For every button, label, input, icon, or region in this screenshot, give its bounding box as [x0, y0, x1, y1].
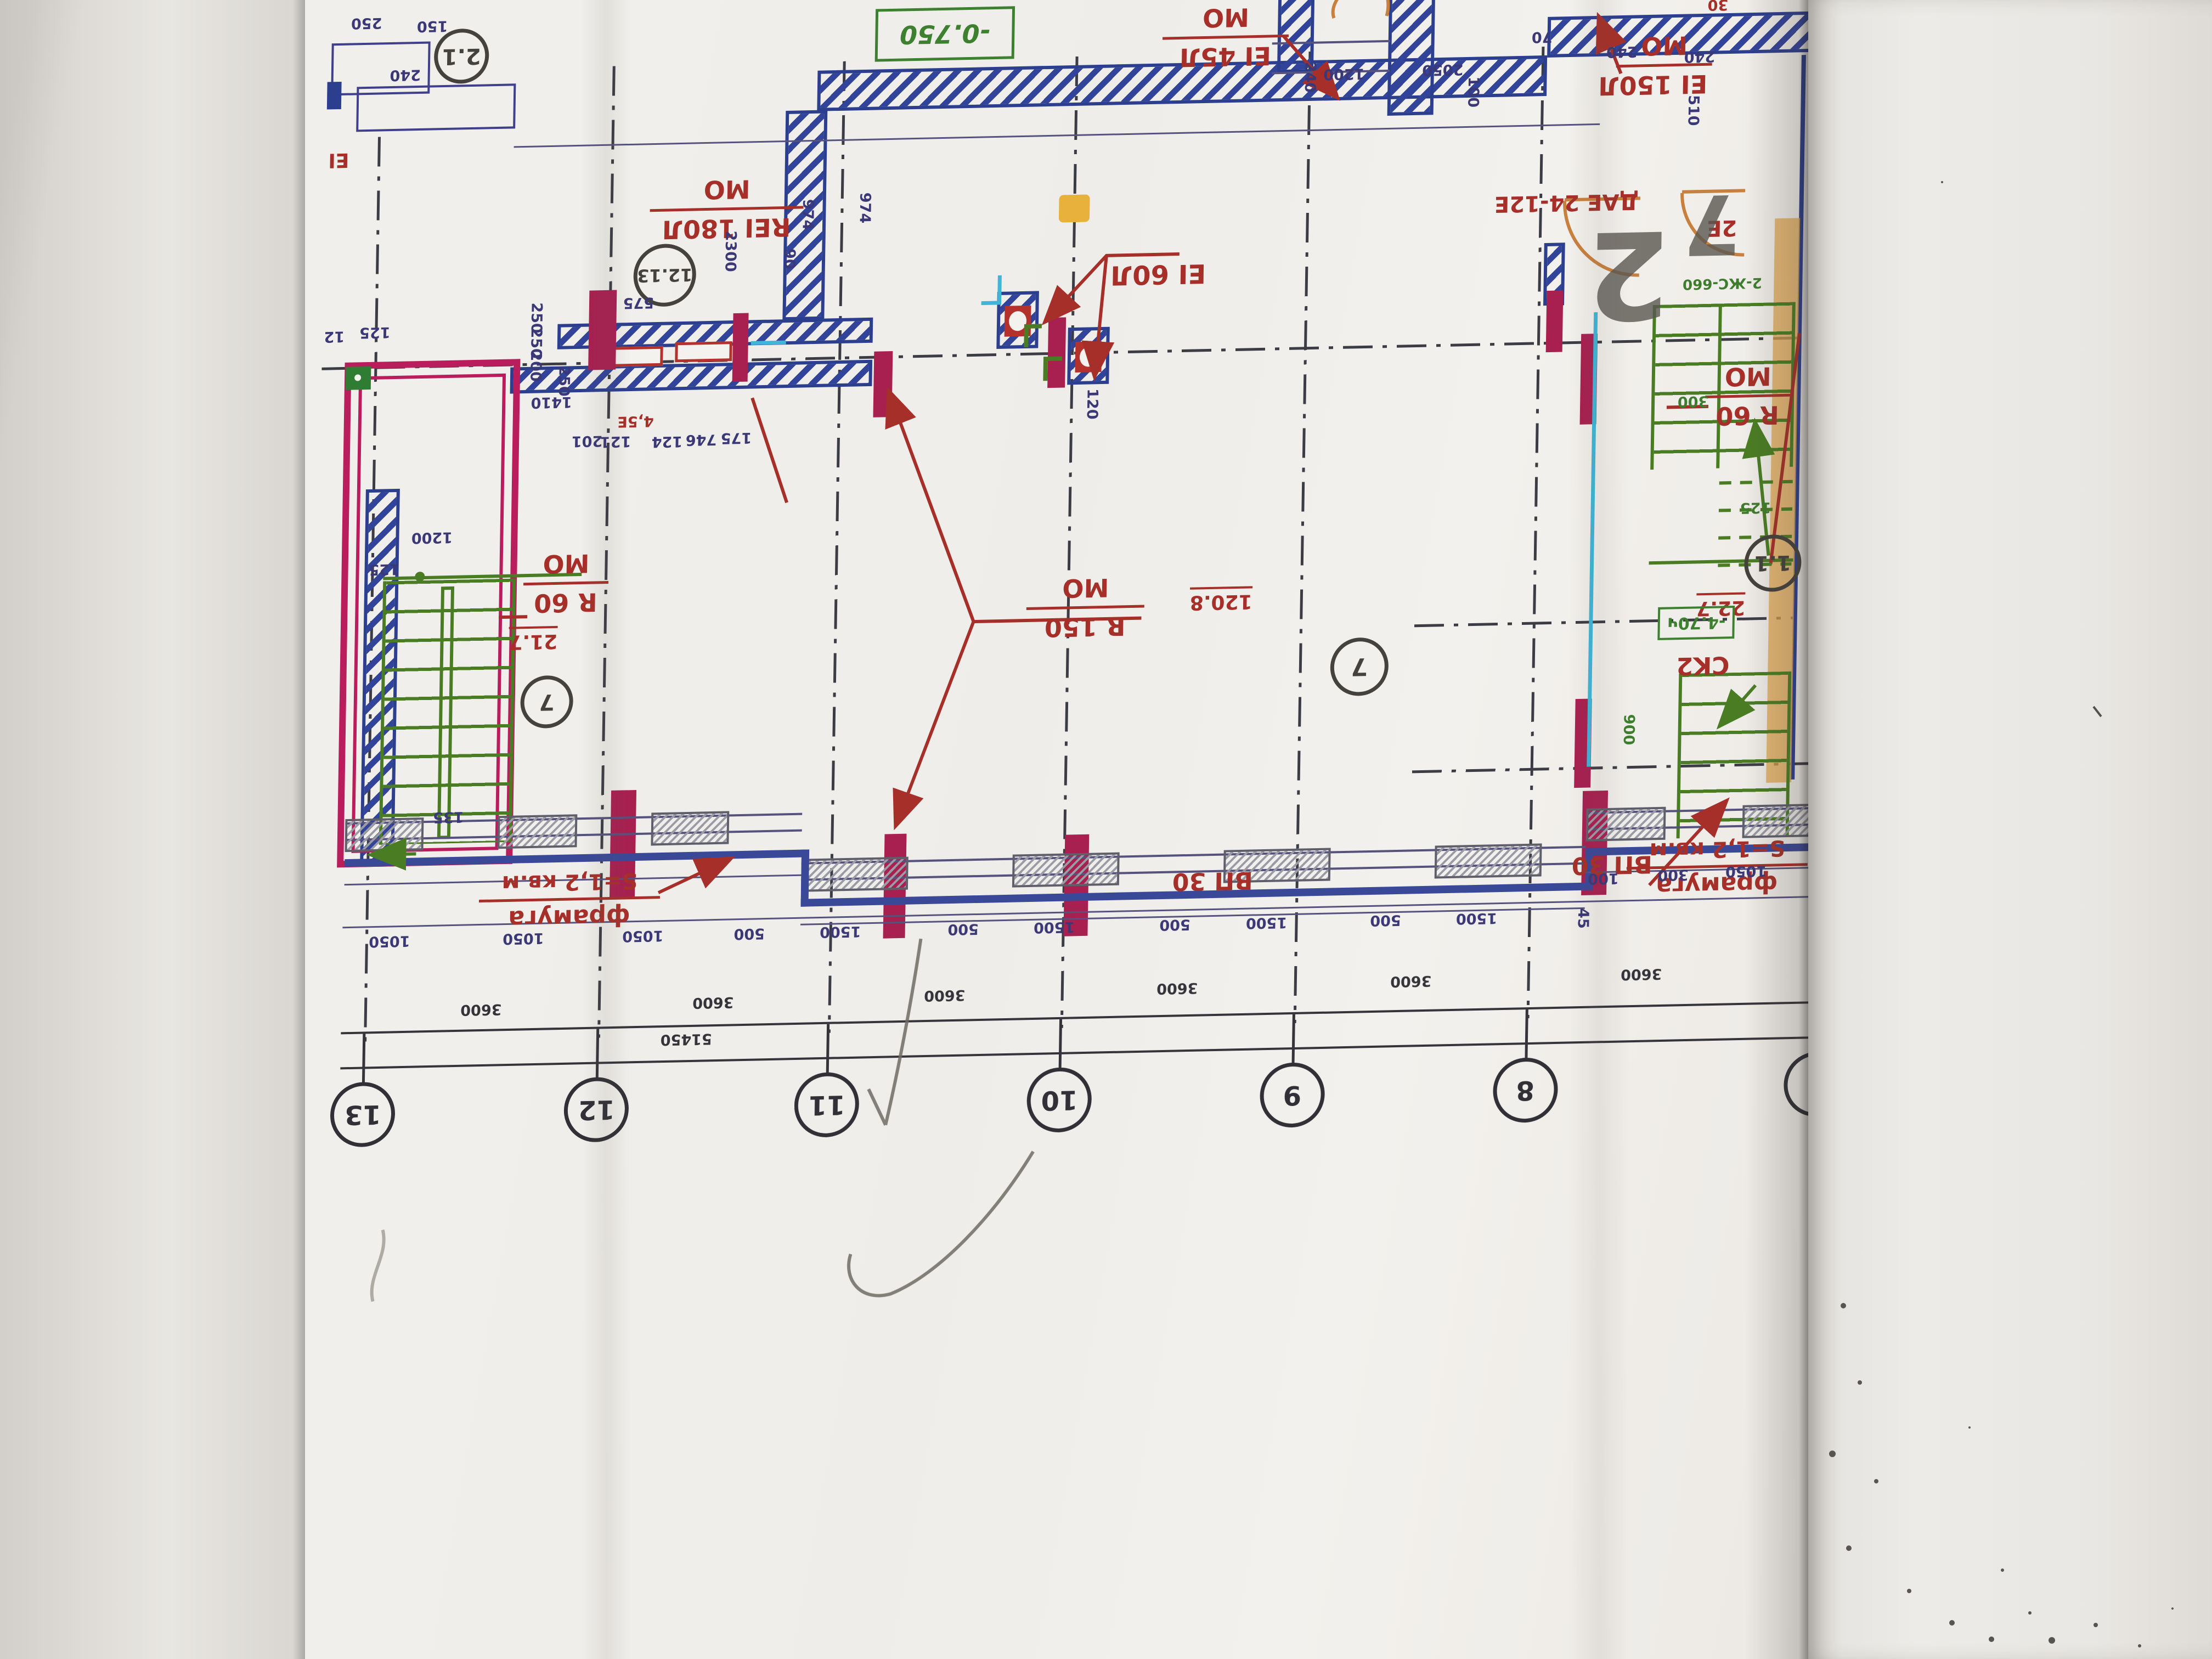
rating-mo: MO [650, 173, 804, 209]
dim-label: 150 [417, 17, 448, 35]
room-area-main: 120.8 [1190, 586, 1253, 613]
pencil-number: 1.1 [1754, 551, 1791, 575]
dim-label: 51450 [661, 1030, 712, 1048]
dim-label: 240 [390, 66, 421, 83]
dim-label: 1500 [1456, 910, 1498, 928]
rating-mo: MO [1163, 2, 1289, 37]
label-ck2: CK2 [1676, 651, 1730, 680]
dim-label: 201 [572, 432, 603, 450]
dim-label: 121 [600, 433, 631, 450]
room-area-left: 21.7 [509, 626, 558, 653]
underlying-paper-sheet [1808, 0, 2212, 1659]
floor-plan-drawing: -0.750 EI 45Л MO REI 180Л MO EI 150Л MO … [0, 0, 1808, 1659]
dim-label: 125 [359, 324, 391, 341]
axis-number: 10 [1041, 1084, 1078, 1115]
dim-label: 1500 [1246, 914, 1288, 932]
pencil-number: 7 [539, 689, 555, 715]
pencil-number: 12.13 [637, 264, 693, 286]
dim-label: 1500 [820, 923, 861, 941]
dim-label: 3600 [1156, 979, 1198, 997]
label-framuga-left: фрамуга S=1,2 кв.м [478, 867, 661, 934]
label-ei60: EI 60Л [1110, 258, 1206, 291]
dim-label: 500 [733, 925, 765, 943]
drawing-sheet: -0.750 EI 45Л MO REI 180Л MO EI 150Л MO … [0, 0, 1808, 1659]
dim-label: 135 [433, 808, 464, 826]
dim-label: 240 [1301, 61, 1319, 93]
dim-label: 124 [652, 433, 683, 450]
green-handwritten-note: 2-ЖС-660 [1683, 274, 1762, 292]
label-ei45: EI 45Л MO [1162, 2, 1289, 73]
dim-label: 974 [856, 192, 874, 223]
dim-label: 3600 [692, 994, 734, 1012]
dim-label: 1500 [1034, 918, 1075, 936]
label-ei-clipped: EI [328, 149, 349, 172]
dim-label: 1200 [411, 528, 453, 546]
dim-label: 90 [781, 249, 798, 269]
axis-number: 13 [344, 1099, 381, 1130]
axis-number: 9 [1283, 1080, 1301, 1111]
cyan-lines [744, 263, 1596, 785]
dim-label: 240 [1684, 48, 1716, 65]
dim-label: 70 [1532, 28, 1553, 46]
label-r150: R 150 MO [1026, 572, 1145, 643]
annotation-overlay [0, 0, 1808, 1659]
framuga-area: S=1,2 кв.м [1627, 834, 1808, 867]
axis-number: 12 [578, 1094, 615, 1125]
dim-label: 746 [686, 431, 717, 448]
dim-label: 240 [1606, 43, 1638, 60]
wall-speckles [1808, 0, 2212, 1659]
rating-value: R 60 [1705, 394, 1790, 431]
pencil-number: 7 [1351, 652, 1368, 681]
axis-number: 8 [1516, 1075, 1534, 1106]
red-leader-lines [494, 14, 1804, 909]
dim-label: 575 [623, 294, 654, 312]
dim-label: 1050 [622, 927, 664, 945]
dim-label: 30 [1707, 0, 1728, 13]
pencil-room-number-7: 7 [1683, 176, 1741, 272]
label-vp30-a: ВП 30 [1172, 866, 1253, 895]
dim-label: 120 [1084, 388, 1101, 420]
rating-mo: MO [1705, 361, 1791, 396]
dim-label: 1050 [503, 929, 544, 947]
dim-label: 3600 [1621, 965, 1662, 983]
stair-level: -4.70ч [1667, 613, 1726, 633]
dim-label: 200 [527, 351, 544, 382]
framuga-word: фрамуга [1626, 863, 1808, 901]
dim-label: 3600 [924, 986, 966, 1005]
dim-label: 500 [947, 920, 979, 938]
dim-label: 125 [369, 560, 400, 578]
rating-mo: MO [523, 548, 609, 583]
dim-label: 125 [1740, 499, 1771, 516]
pencil-room-number-2: 2 [1585, 203, 1672, 345]
rating-value: R 60 [523, 581, 608, 618]
axis-number: 11 [808, 1089, 845, 1120]
rating-value: EI 45Л [1162, 35, 1289, 73]
dim-label: 3600 [1390, 972, 1432, 990]
dim-label: 974 [799, 199, 816, 230]
label-r60-left: R 60 MO [523, 548, 609, 618]
dim-label: 12 [324, 328, 345, 345]
dim-label: 900 [1620, 714, 1638, 746]
dim-label: 3600 [460, 1001, 502, 1019]
level-mark: -0.750 [900, 18, 990, 49]
dim-label: 1200 [1323, 65, 1365, 83]
dim-label: 300 [1678, 392, 1709, 410]
pencil-number: 2.1 [442, 43, 481, 70]
dim-label: 45 [1575, 908, 1592, 929]
level-mark-box: -0.750 [875, 6, 1015, 61]
label-framuga-right: фрамуга S=1,2 кв.м [1626, 834, 1808, 901]
dim-label: 300 [1657, 866, 1689, 883]
stair-level-box: -4.70ч [1657, 606, 1735, 640]
label-r60-right: R 60 MO [1705, 361, 1791, 431]
dim-label: 250 [555, 365, 573, 397]
dim-label: 2050 [1422, 61, 1464, 79]
dim-label: 175 [721, 429, 752, 447]
dim-label: 510 [1685, 95, 1702, 126]
rating-value: R 150 [1026, 605, 1144, 644]
dim-label: 100 [1464, 76, 1482, 108]
rating-mo: MO [1026, 572, 1145, 607]
dim-label: 1050 [1725, 862, 1767, 880]
framuga-area: S=1,2 кв.м [479, 867, 661, 900]
dim-label: 500 [1159, 916, 1190, 933]
dim-label: 2300 [721, 230, 739, 272]
label-ei150: EI 150Л MO [1616, 30, 1713, 101]
dim-label: 250 [351, 14, 382, 32]
dim-label: 100 [1588, 870, 1619, 887]
dim-label: 4,5Е [617, 413, 654, 430]
photo-of-floor-plan: -0.750 EI 45Л MO REI 180Л MO EI 150Л MO … [0, 0, 2212, 1659]
dim-label: 500 [1370, 911, 1401, 929]
dim-label: 1050 [369, 932, 410, 950]
